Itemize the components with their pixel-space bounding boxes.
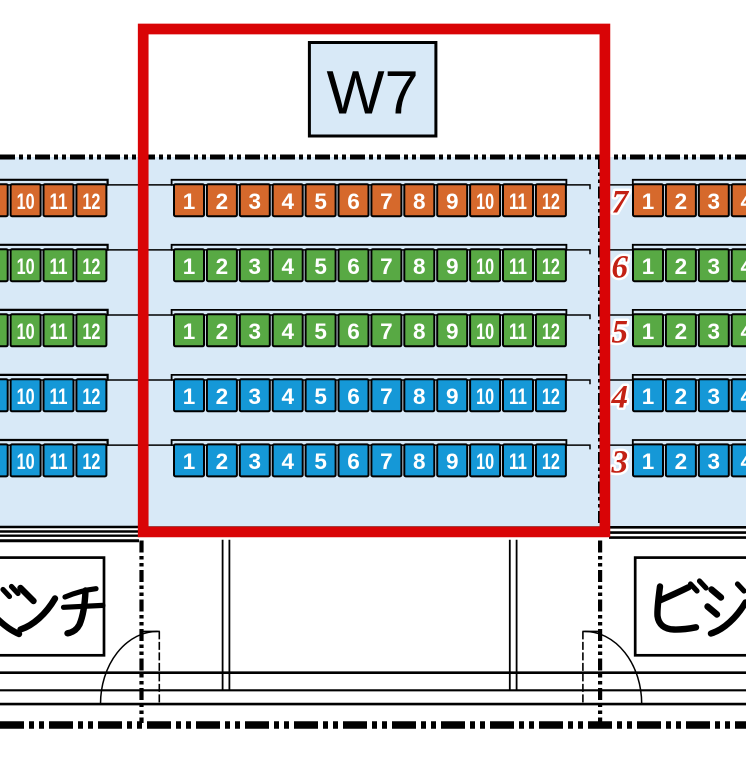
svg-text:2: 2 <box>675 189 688 214</box>
svg-text:4: 4 <box>740 254 746 279</box>
svg-text:11: 11 <box>50 319 68 344</box>
svg-text:1: 1 <box>183 189 196 214</box>
svg-text:10: 10 <box>476 319 494 344</box>
svg-text:1: 1 <box>642 449 655 474</box>
svg-text:3: 3 <box>249 384 262 409</box>
svg-text:4: 4 <box>281 189 294 214</box>
svg-text:2: 2 <box>216 254 229 279</box>
svg-text:12: 12 <box>542 319 560 344</box>
svg-text:3: 3 <box>249 189 262 214</box>
svg-text:11: 11 <box>50 254 68 279</box>
svg-text:4: 4 <box>611 380 629 416</box>
svg-text:2: 2 <box>216 384 229 409</box>
svg-text:1: 1 <box>183 384 196 409</box>
svg-text:12: 12 <box>82 189 100 214</box>
svg-text:9: 9 <box>446 384 459 409</box>
svg-text:4: 4 <box>281 319 294 344</box>
svg-text:7: 7 <box>612 185 630 221</box>
svg-text:9: 9 <box>446 319 459 344</box>
svg-text:11: 11 <box>509 449 527 474</box>
svg-text:4: 4 <box>281 384 294 409</box>
svg-text:3: 3 <box>249 254 262 279</box>
svg-text:5: 5 <box>314 319 327 344</box>
svg-text:6: 6 <box>347 189 360 214</box>
svg-text:8: 8 <box>413 384 426 409</box>
svg-text:3: 3 <box>611 445 629 481</box>
svg-text:8: 8 <box>413 449 426 474</box>
svg-text:5: 5 <box>314 384 327 409</box>
svg-text:6: 6 <box>347 254 360 279</box>
svg-text:12: 12 <box>542 449 560 474</box>
svg-text:10: 10 <box>476 384 494 409</box>
svg-text:11: 11 <box>509 319 527 344</box>
svg-text:12: 12 <box>542 189 560 214</box>
svg-text:5: 5 <box>314 254 327 279</box>
svg-text:7: 7 <box>380 254 393 279</box>
svg-text:3: 3 <box>708 449 721 474</box>
svg-text:7: 7 <box>380 319 393 344</box>
svg-text:3: 3 <box>249 449 262 474</box>
svg-text:10: 10 <box>17 319 35 344</box>
svg-text:10: 10 <box>476 189 494 214</box>
svg-text:4: 4 <box>281 449 294 474</box>
svg-text:11: 11 <box>50 189 68 214</box>
svg-text:5: 5 <box>314 189 327 214</box>
svg-text:9: 9 <box>446 189 459 214</box>
svg-text:4: 4 <box>740 189 746 214</box>
svg-text:1: 1 <box>183 319 196 344</box>
svg-text:12: 12 <box>82 319 100 344</box>
svg-text:1: 1 <box>183 254 196 279</box>
svg-text:10: 10 <box>17 384 35 409</box>
svg-text:11: 11 <box>509 254 527 279</box>
svg-text:4: 4 <box>281 254 294 279</box>
svg-text:5: 5 <box>612 315 629 351</box>
svg-text:12: 12 <box>542 384 560 409</box>
svg-text:10: 10 <box>476 254 494 279</box>
svg-text:2: 2 <box>216 189 229 214</box>
svg-text:2: 2 <box>675 449 688 474</box>
svg-text:3: 3 <box>708 189 721 214</box>
svg-text:4: 4 <box>740 384 746 409</box>
svg-text:3: 3 <box>708 254 721 279</box>
svg-text:2: 2 <box>216 319 229 344</box>
svg-text:1: 1 <box>642 189 655 214</box>
svg-text:3: 3 <box>708 319 721 344</box>
svg-text:12: 12 <box>82 449 100 474</box>
svg-text:1: 1 <box>642 319 655 344</box>
svg-text:2: 2 <box>675 254 688 279</box>
svg-text:3: 3 <box>708 384 721 409</box>
svg-text:9: 9 <box>446 254 459 279</box>
svg-text:2: 2 <box>216 449 229 474</box>
svg-text:6: 6 <box>347 449 360 474</box>
svg-text:7: 7 <box>380 449 393 474</box>
svg-text:10: 10 <box>17 449 35 474</box>
svg-text:12: 12 <box>82 384 100 409</box>
svg-text:8: 8 <box>413 189 426 214</box>
svg-text:7: 7 <box>380 384 393 409</box>
svg-text:11: 11 <box>509 189 527 214</box>
svg-text:12: 12 <box>542 254 560 279</box>
svg-text:10: 10 <box>476 449 494 474</box>
svg-text:5: 5 <box>314 449 327 474</box>
svg-text:11: 11 <box>509 384 527 409</box>
svg-text:11: 11 <box>50 384 68 409</box>
svg-text:1: 1 <box>642 254 655 279</box>
svg-text:6: 6 <box>347 319 360 344</box>
svg-text:1: 1 <box>642 384 655 409</box>
svg-text:10: 10 <box>17 254 35 279</box>
svg-text:2: 2 <box>675 319 688 344</box>
svg-text:12: 12 <box>82 254 100 279</box>
svg-text:W7: W7 <box>326 59 418 128</box>
svg-text:8: 8 <box>413 254 426 279</box>
svg-text:11: 11 <box>50 449 68 474</box>
svg-text:6: 6 <box>612 250 629 286</box>
svg-text:6: 6 <box>347 384 360 409</box>
svg-text:1: 1 <box>183 449 196 474</box>
svg-text:7: 7 <box>380 189 393 214</box>
svg-text:4: 4 <box>740 319 746 344</box>
svg-text:4: 4 <box>740 449 746 474</box>
svg-text:8: 8 <box>413 319 426 344</box>
svg-text:3: 3 <box>249 319 262 344</box>
svg-text:10: 10 <box>17 189 35 214</box>
svg-text:2: 2 <box>675 384 688 409</box>
svg-text:9: 9 <box>446 449 459 474</box>
